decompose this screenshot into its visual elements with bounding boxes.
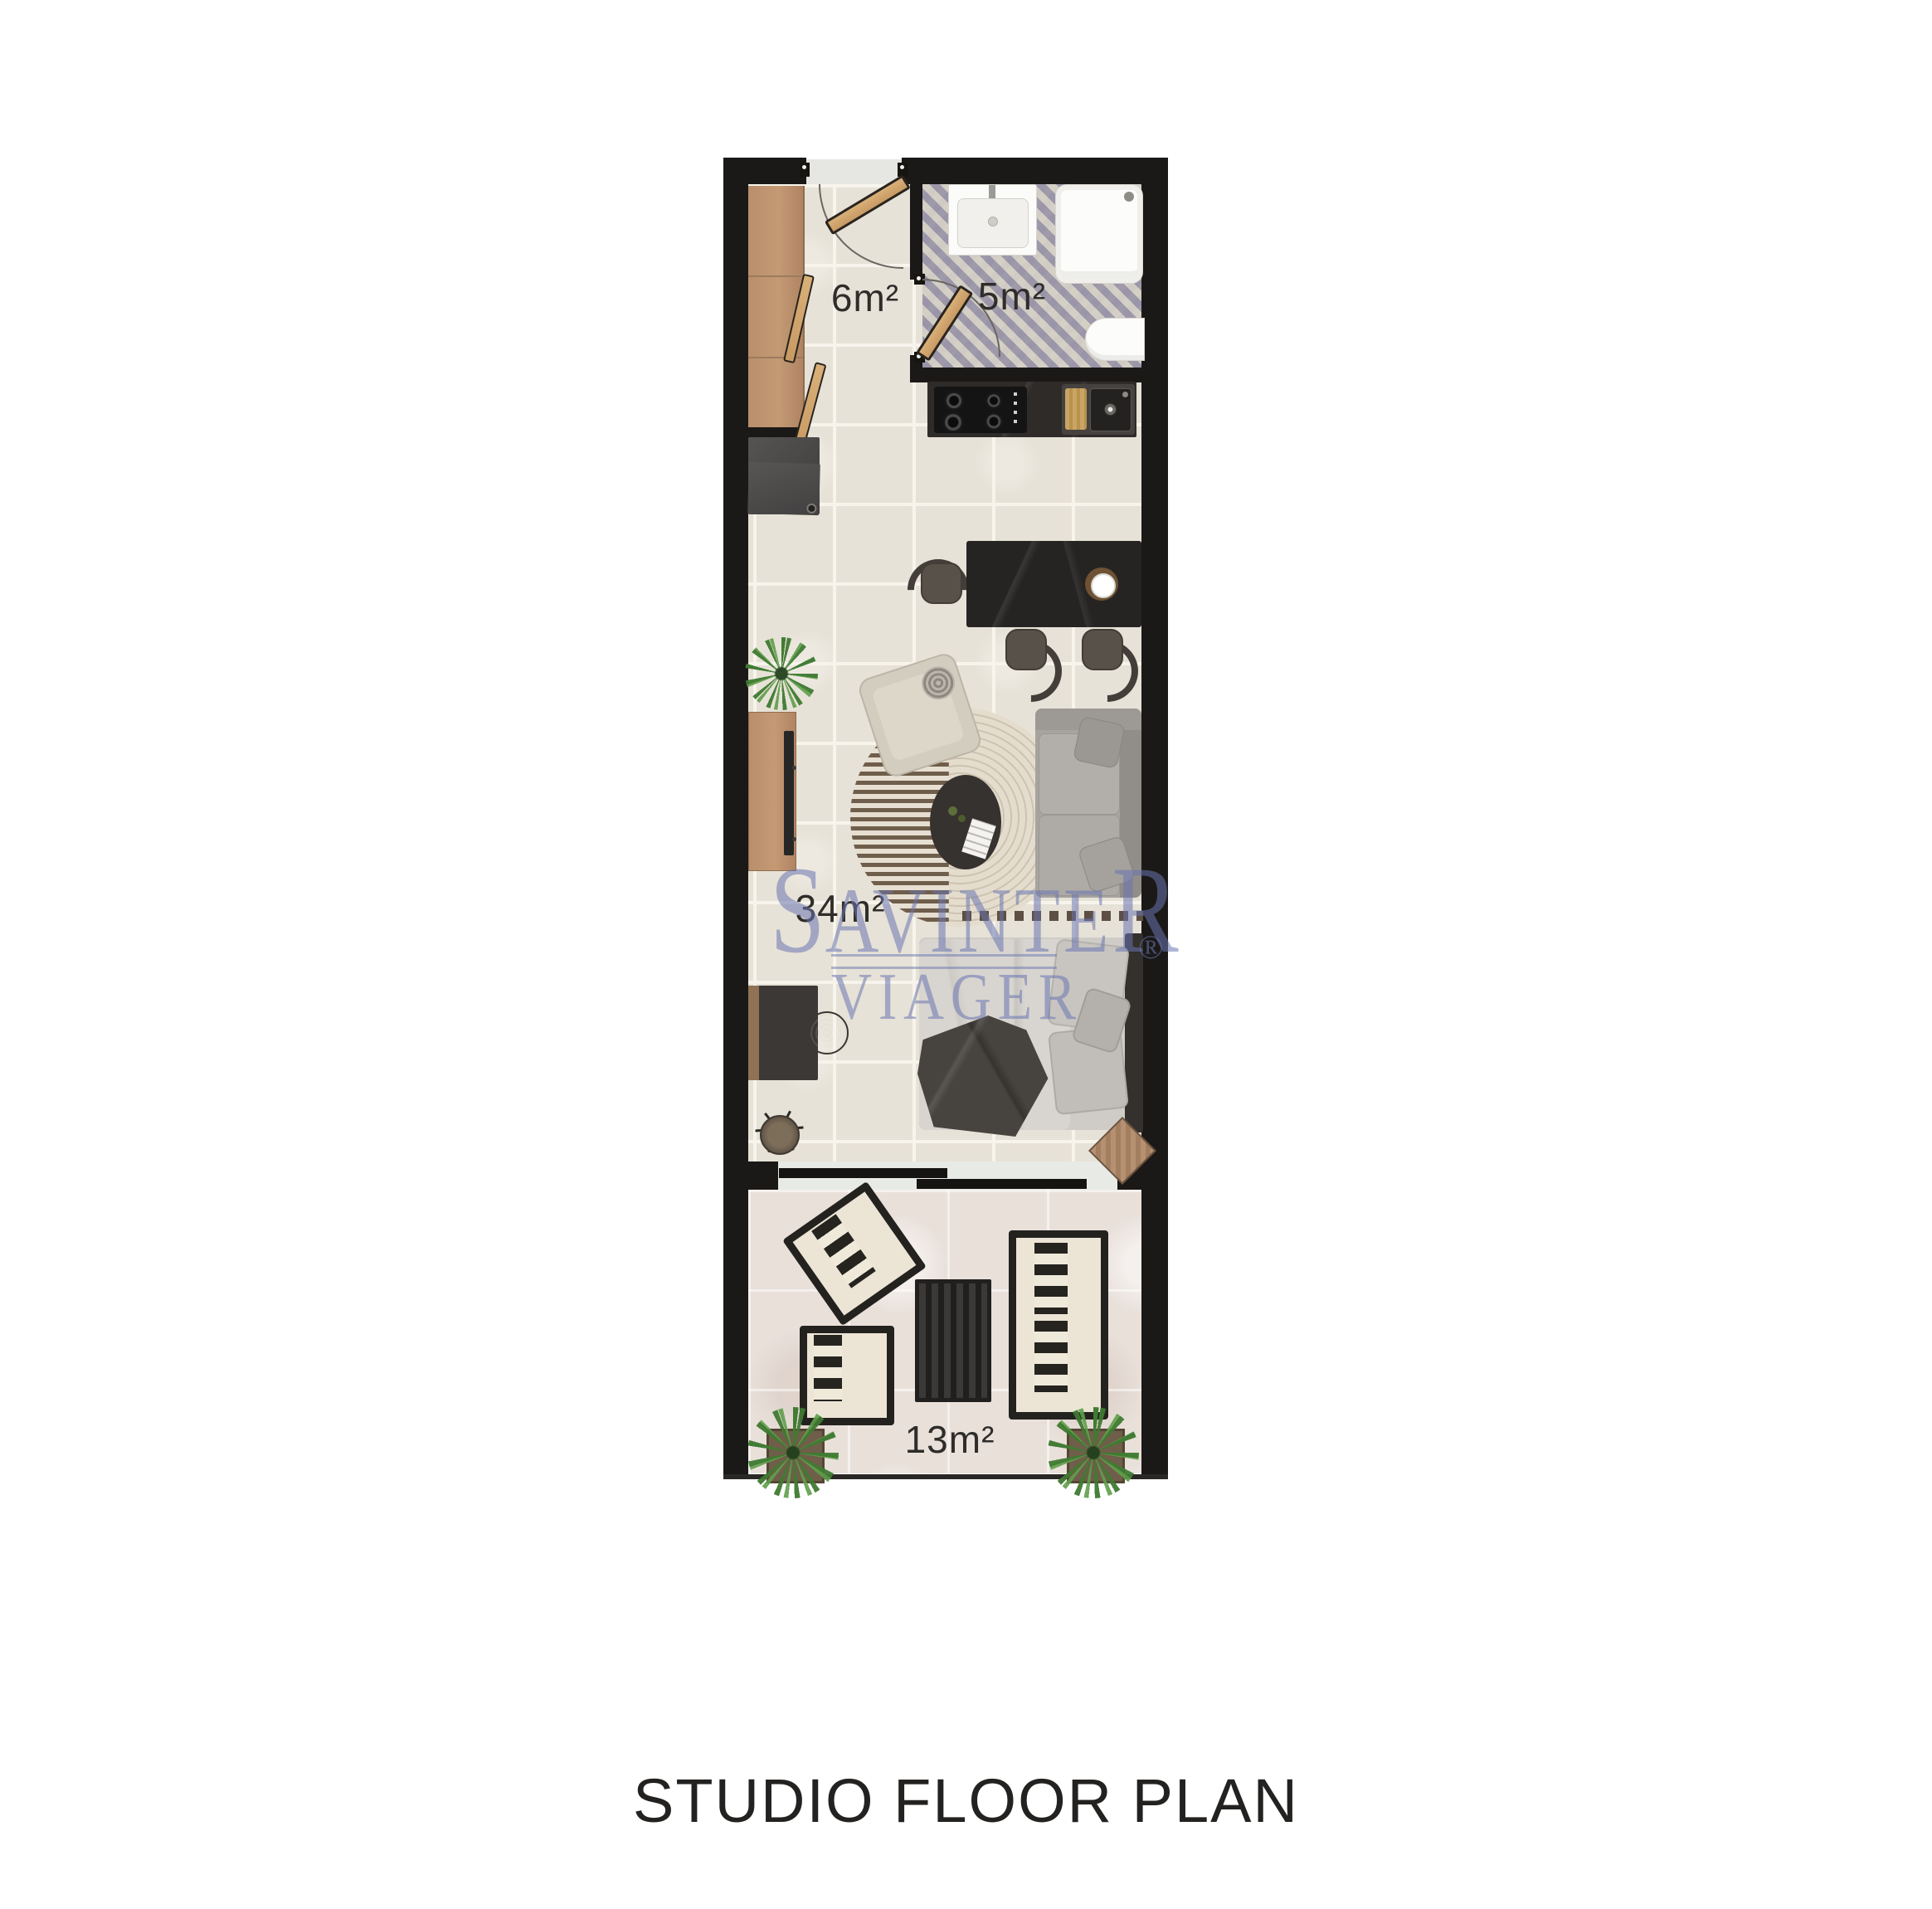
- wall-right: [1141, 158, 1168, 1161]
- potted-plant-icon: [745, 637, 818, 710]
- entry-door-hinge-left: [800, 163, 810, 177]
- lamp-shade: [760, 1115, 800, 1155]
- wall-kitchen-top: [910, 368, 1168, 382]
- kitchen-sink-module: [1062, 384, 1135, 435]
- terrace-armchair-cushion-stripes: [811, 1214, 876, 1288]
- toilet: [1085, 318, 1145, 361]
- terrace-area-label: 13m²: [904, 1417, 995, 1462]
- bathroom-vanity-sink: [948, 184, 1037, 256]
- registered-mark-icon: ®: [1138, 928, 1163, 967]
- wall-terrace-right: [1141, 1190, 1168, 1479]
- table-plate: [1091, 573, 1116, 598]
- sliding-door-panel-right: [917, 1179, 1087, 1189]
- wall-slider-left-stub: [723, 1161, 778, 1190]
- sofa-pillow: [1073, 716, 1126, 769]
- page: 6m² 5m²: [0, 0, 1932, 1909]
- faucet-dot-icon: [1122, 392, 1128, 397]
- terrace-sofa-roll-pillow: [1034, 1321, 1068, 1392]
- sink-faucet-icon: [989, 185, 995, 198]
- dining-chair: [1082, 629, 1123, 670]
- wall-bathroom-partition-upper: [910, 158, 922, 280]
- entry-area-label: 6m²: [824, 275, 907, 320]
- decor-fruit-icon: [948, 806, 957, 816]
- shower-drain: [1124, 192, 1134, 202]
- wall-terrace-left: [723, 1190, 748, 1479]
- burner-icon: [942, 412, 964, 433]
- burner-icon: [985, 392, 1002, 409]
- terrace-plant-icon: [747, 1407, 839, 1498]
- watermark-initial: S: [770, 848, 825, 972]
- cooktop-controls: [1014, 392, 1017, 429]
- watermark-line2: VIAGER: [831, 964, 1083, 1030]
- sink-drain-icon: [1104, 403, 1117, 416]
- dining-chair: [1005, 629, 1047, 670]
- wall-top-right-segment: [902, 158, 1168, 184]
- sideboard-tv-unit: [747, 462, 820, 515]
- wall-left: [723, 158, 748, 1161]
- cooktop: [934, 387, 1027, 433]
- terrace-armchair-cushion-stripes: [814, 1335, 842, 1401]
- terrace-sofa: [1009, 1230, 1108, 1420]
- sink-drain: [988, 217, 998, 226]
- shower-tray: [1055, 184, 1143, 284]
- desk-wood-edge: [748, 986, 759, 1080]
- burner-icon: [985, 412, 1003, 431]
- cutting-board: [1065, 388, 1087, 430]
- wardrobe-shelf-line: [748, 275, 803, 277]
- sliding-door-panel-left: [779, 1168, 947, 1178]
- terrace-armchair: [800, 1326, 894, 1425]
- terrace-slatted-table: [915, 1279, 991, 1402]
- dining-chair: [921, 562, 962, 604]
- sideboard-knob: [806, 504, 816, 514]
- terrace-sofa-roll-pillow: [1034, 1243, 1068, 1314]
- burner-icon: [944, 391, 964, 411]
- kitchen-sink-basin: [1090, 388, 1131, 431]
- bathroom-area-label: 5m²: [971, 274, 1054, 319]
- plan-caption: STUDIO FLOOR PLAN: [0, 1765, 1932, 1836]
- console-knob: [792, 766, 796, 770]
- terrace-plant-icon: [1048, 1407, 1139, 1498]
- decor-fruit-icon: [958, 815, 966, 822]
- floor-lamp-icon: [753, 1103, 806, 1157]
- entry-door-threshold: [806, 159, 902, 184]
